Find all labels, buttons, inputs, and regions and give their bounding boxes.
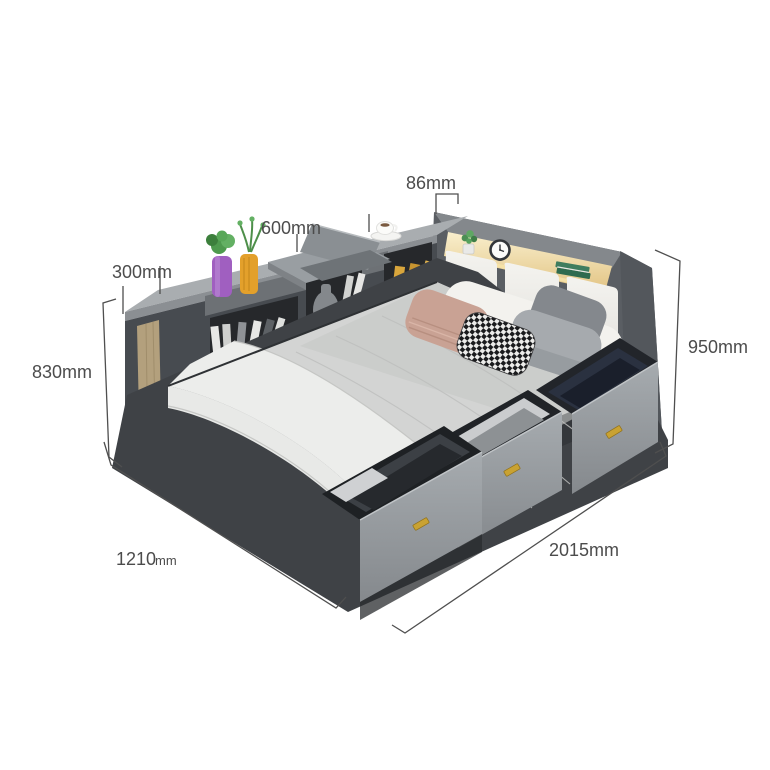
dim-label-headboard-height: 950mm bbox=[688, 337, 748, 357]
coffee-cup bbox=[371, 222, 401, 241]
dim-label-side-height: 830mm bbox=[32, 362, 92, 382]
dim-bracket-headboard-top bbox=[436, 194, 458, 214]
product-dimension-diagram: 86mm 600mm 300mm 830mm 950mm 1210 mm 201… bbox=[0, 0, 770, 770]
dim-label-headboard-top: 86mm bbox=[406, 173, 456, 193]
alcove-clock bbox=[491, 241, 510, 262]
dim-label-length: 2015mm bbox=[549, 540, 619, 560]
dim-label-width-value: 1210 bbox=[116, 549, 156, 569]
dim-label-width-unit: mm bbox=[155, 553, 177, 568]
scene-svg: 86mm 600mm 300mm 830mm 950mm 1210 mm 201… bbox=[0, 0, 770, 770]
dim-label-shelf-depth: 300mm bbox=[112, 262, 172, 282]
dim-label-tray: 600mm bbox=[261, 218, 321, 238]
